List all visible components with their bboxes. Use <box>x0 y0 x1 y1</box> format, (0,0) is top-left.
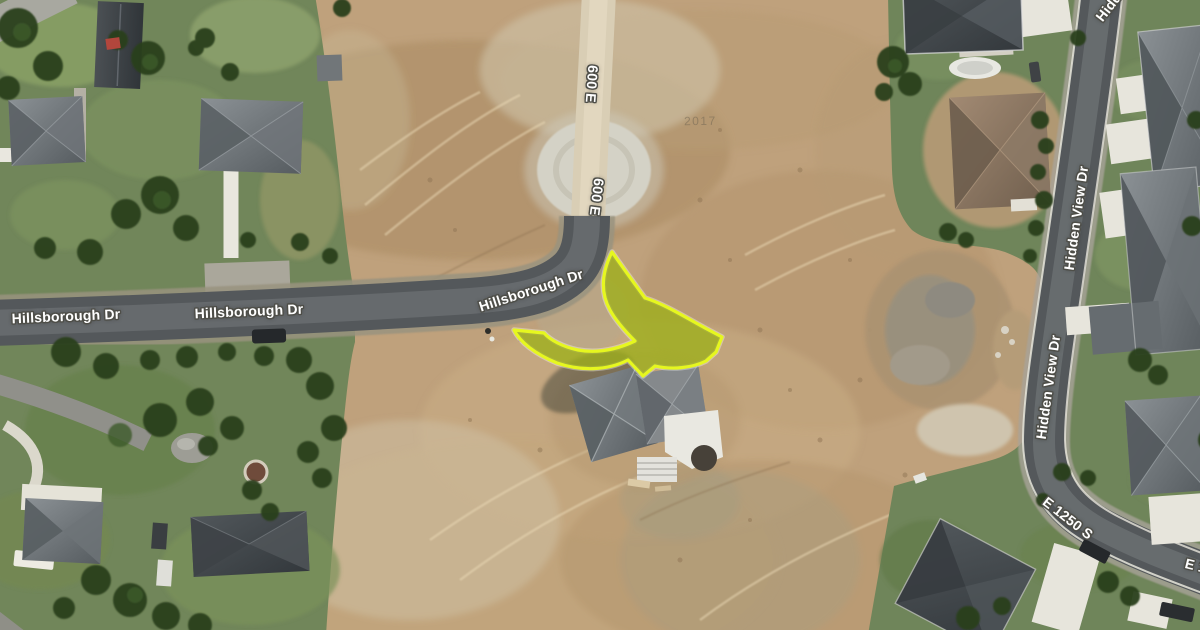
house-roof <box>1125 395 1200 495</box>
tank <box>691 445 717 471</box>
house-roof <box>18 484 104 564</box>
house-roof <box>199 98 303 174</box>
house-roof <box>191 511 310 577</box>
shed-roof <box>317 55 343 82</box>
satellite-imagery <box>0 0 1200 630</box>
stairs <box>637 457 677 482</box>
mailbox <box>485 328 491 334</box>
house-roof <box>8 96 85 166</box>
house-roof <box>903 0 1023 54</box>
satellite-map[interactable]: 2017 Hillsborough DrHillsborough DrHills… <box>0 0 1200 630</box>
hot-tub <box>245 461 267 483</box>
dirt-road-600e <box>588 0 599 222</box>
